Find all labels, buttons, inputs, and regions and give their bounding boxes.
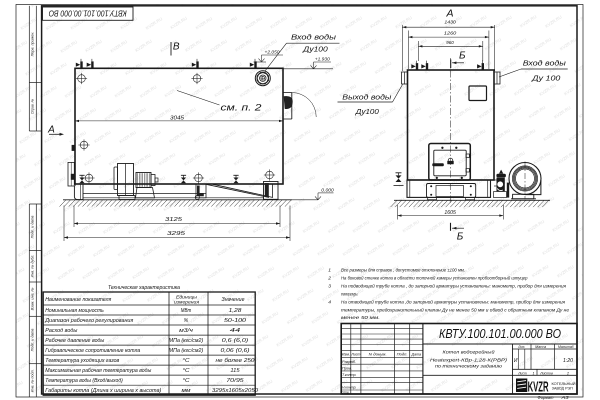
svg-text:менее 50 мм.: менее 50 мм. — [341, 315, 380, 321]
svg-text:температуры.: температуры. — [341, 293, 358, 298]
svg-text:На подводящей трубе котла ,: На подводящей трубе котла , до запорной … — [341, 282, 566, 289]
svg-text:Дата: Дата — [411, 353, 421, 357]
svg-text:3045: 3045 — [170, 116, 184, 122]
svg-text:Изм.: Изм. — [342, 353, 351, 357]
svg-text:0,06 (0,6): 0,06 (0,6) — [221, 348, 250, 354]
svg-text:1260: 1260 — [444, 31, 457, 36]
svg-text:Подп. и дата: Подп. и дата — [31, 215, 35, 238]
svg-text:Вход воды: Вход воды — [291, 33, 336, 42]
svg-text:На боковой стенке котла в обла: На боковой стенке котла в области топочн… — [341, 274, 528, 281]
svg-text:Техническая характеристика: Техническая характеристика — [108, 285, 180, 291]
svg-text:4: 4 — [328, 300, 331, 306]
svg-text:2: 2 — [327, 275, 331, 281]
svg-text:по техническому заданию: по техническому заданию — [435, 363, 502, 369]
svg-text:Перв. примен.: Перв. примен. — [31, 32, 35, 57]
svg-text:Инв. № дубл.: Инв. № дубл. — [31, 254, 35, 277]
svg-text:1: 1 — [533, 371, 535, 375]
svg-text:измерения: измерения — [174, 300, 200, 305]
svg-text:1430: 1430 — [444, 20, 456, 25]
svg-text:МВт: МВт — [181, 308, 191, 314]
svg-text:м3/ч: м3/ч — [179, 328, 193, 334]
svg-text:МПа (кгс/см2): МПа (кгс/см2) — [169, 348, 204, 354]
svg-text:Листов: Листов — [539, 371, 553, 375]
svg-text:KVZR: KVZR — [528, 378, 549, 395]
svg-text:°С: °С — [183, 368, 190, 374]
svg-text:+1.930: +1.930 — [315, 57, 331, 62]
svg-text:70/95: 70/95 — [226, 378, 244, 384]
svg-text:0.000: 0.000 — [321, 188, 334, 193]
svg-text:3125: 3125 — [165, 217, 182, 223]
svg-text:КВТУ.100.101.00.000 ВО: КВТУ.100.101.00.000 ВО — [439, 326, 561, 341]
svg-text:Вход воды: Вход воды — [523, 59, 566, 68]
svg-text:Максимальная рабочая температу: Максимальная рабочая температура воды — [45, 368, 151, 374]
svg-text:МПа (кгс/см2): МПа (кгс/см2) — [169, 338, 204, 344]
svg-text:не более 250: не более 250 — [216, 358, 255, 364]
svg-text:А3: А3 — [560, 395, 569, 400]
svg-text:температуры, предохранительный: температуры, предохранительный клапан Ду… — [341, 307, 569, 314]
svg-text:1,28: 1,28 — [229, 308, 242, 314]
svg-text:И: И — [514, 358, 518, 364]
svg-text:1605: 1605 — [444, 210, 456, 216]
svg-text:Масса: Масса — [535, 345, 546, 349]
svg-text:Все размеры для справок , допу: Все размеры для справок , допустимое отк… — [341, 267, 465, 273]
svg-text:0,6 (6,0): 0,6 (6,0) — [222, 338, 249, 344]
svg-text:Т.контр.: Т.контр. — [342, 373, 357, 377]
svg-text:Рабочее давление воды: Рабочее давление воды — [45, 338, 104, 344]
svg-text:Гидравлическое сопротивление к: Гидравлическое сопротивление котла — [45, 348, 140, 354]
svg-text:115: 115 — [230, 368, 239, 374]
svg-text:2: 2 — [566, 371, 569, 375]
svg-text:N докум.: N докум. — [369, 353, 387, 357]
svg-text:Лит.: Лит. — [517, 345, 525, 349]
svg-text:Номинальная мощность: Номинальная мощность — [45, 308, 104, 314]
svg-text:Инв. № подл.: Инв. № подл. — [31, 369, 35, 392]
svg-text:Масштаб: Масштаб — [558, 345, 574, 349]
svg-text:Подп. и дата: Подп. и дата — [31, 328, 35, 351]
svg-text:На отводящей трубе котла ,до з: На отводящей трубе котла ,до запорной ар… — [341, 299, 565, 306]
svg-text:Формат: Формат — [538, 395, 554, 400]
svg-text:°С: °С — [183, 378, 190, 384]
svg-text:Ду 100: Ду 100 — [531, 73, 561, 82]
svg-text:Наименование показателя: Наименование показателя — [45, 297, 111, 303]
svg-text:Диапазон рабочего регулировани: Диапазон рабочего регулирования — [44, 318, 133, 324]
svg-text:Температура воды (Вход/выход): Температура воды (Вход/выход) — [45, 378, 123, 384]
svg-text:мм: мм — [182, 388, 192, 394]
svg-text:ЗАВОД РЭП: ЗАВОД РЭП — [552, 385, 573, 390]
svg-text:960: 960 — [446, 40, 454, 45]
svg-text:3295: 3295 — [167, 231, 185, 237]
svg-text:см. п. 2: см. п. 2 — [221, 102, 262, 112]
svg-text:Лист: Лист — [350, 353, 360, 357]
svg-text:Ду100: Ду100 — [355, 107, 380, 116]
svg-text:Котел водогрейный: Котел водогрейный — [443, 348, 495, 355]
svg-text:Heatexpert-КВр-1,28-К(РВР): Heatexpert-КВр-1,28-К(РВР) — [430, 357, 507, 363]
svg-text:3295х1605х2050: 3295х1605х2050 — [212, 388, 258, 394]
svg-text:Выход воды: Выход воды — [342, 92, 391, 101]
svg-text:КВТУ.100.101.00.000 ВО: КВТУ.100.101.00.000 ВО — [48, 8, 126, 18]
svg-text:Значение: Значение — [222, 297, 245, 303]
svg-text:Пров.: Пров. — [342, 367, 352, 371]
svg-text:3: 3 — [328, 283, 331, 289]
svg-text:Б: Б — [457, 232, 464, 243]
svg-text:50-100: 50-100 — [224, 318, 246, 324]
svg-text:Разраб.: Разраб. — [342, 360, 356, 364]
svg-text:Б: Б — [459, 51, 466, 62]
svg-text:Утв.: Утв. — [342, 390, 350, 394]
svg-text:Лист: Лист — [517, 371, 526, 375]
svg-text:Расход воды: Расход воды — [45, 328, 77, 334]
svg-text:В: В — [173, 42, 180, 53]
svg-text:Подп.: Подп. — [397, 353, 408, 357]
svg-text:Габариты котла (Длина х ширина: Габариты котла (Длина х ширина х высота) — [45, 388, 161, 394]
svg-text:%: % — [184, 318, 189, 324]
svg-text:44: 44 — [230, 328, 241, 334]
svg-text:Температура уходящих газов: Температура уходящих газов — [45, 358, 119, 364]
svg-text:Взам. инв. №: Взам. инв. № — [31, 287, 35, 310]
svg-text:1: 1 — [328, 267, 331, 273]
svg-text:Справ. №: Справ. № — [31, 98, 35, 114]
svg-text:Ду100: Ду100 — [302, 44, 328, 53]
svg-text:1:20: 1:20 — [563, 358, 573, 364]
svg-text:Н.контр.: Н.контр. — [342, 385, 357, 389]
svg-text:А: А — [445, 8, 453, 20]
svg-text:°С: °С — [183, 358, 190, 364]
